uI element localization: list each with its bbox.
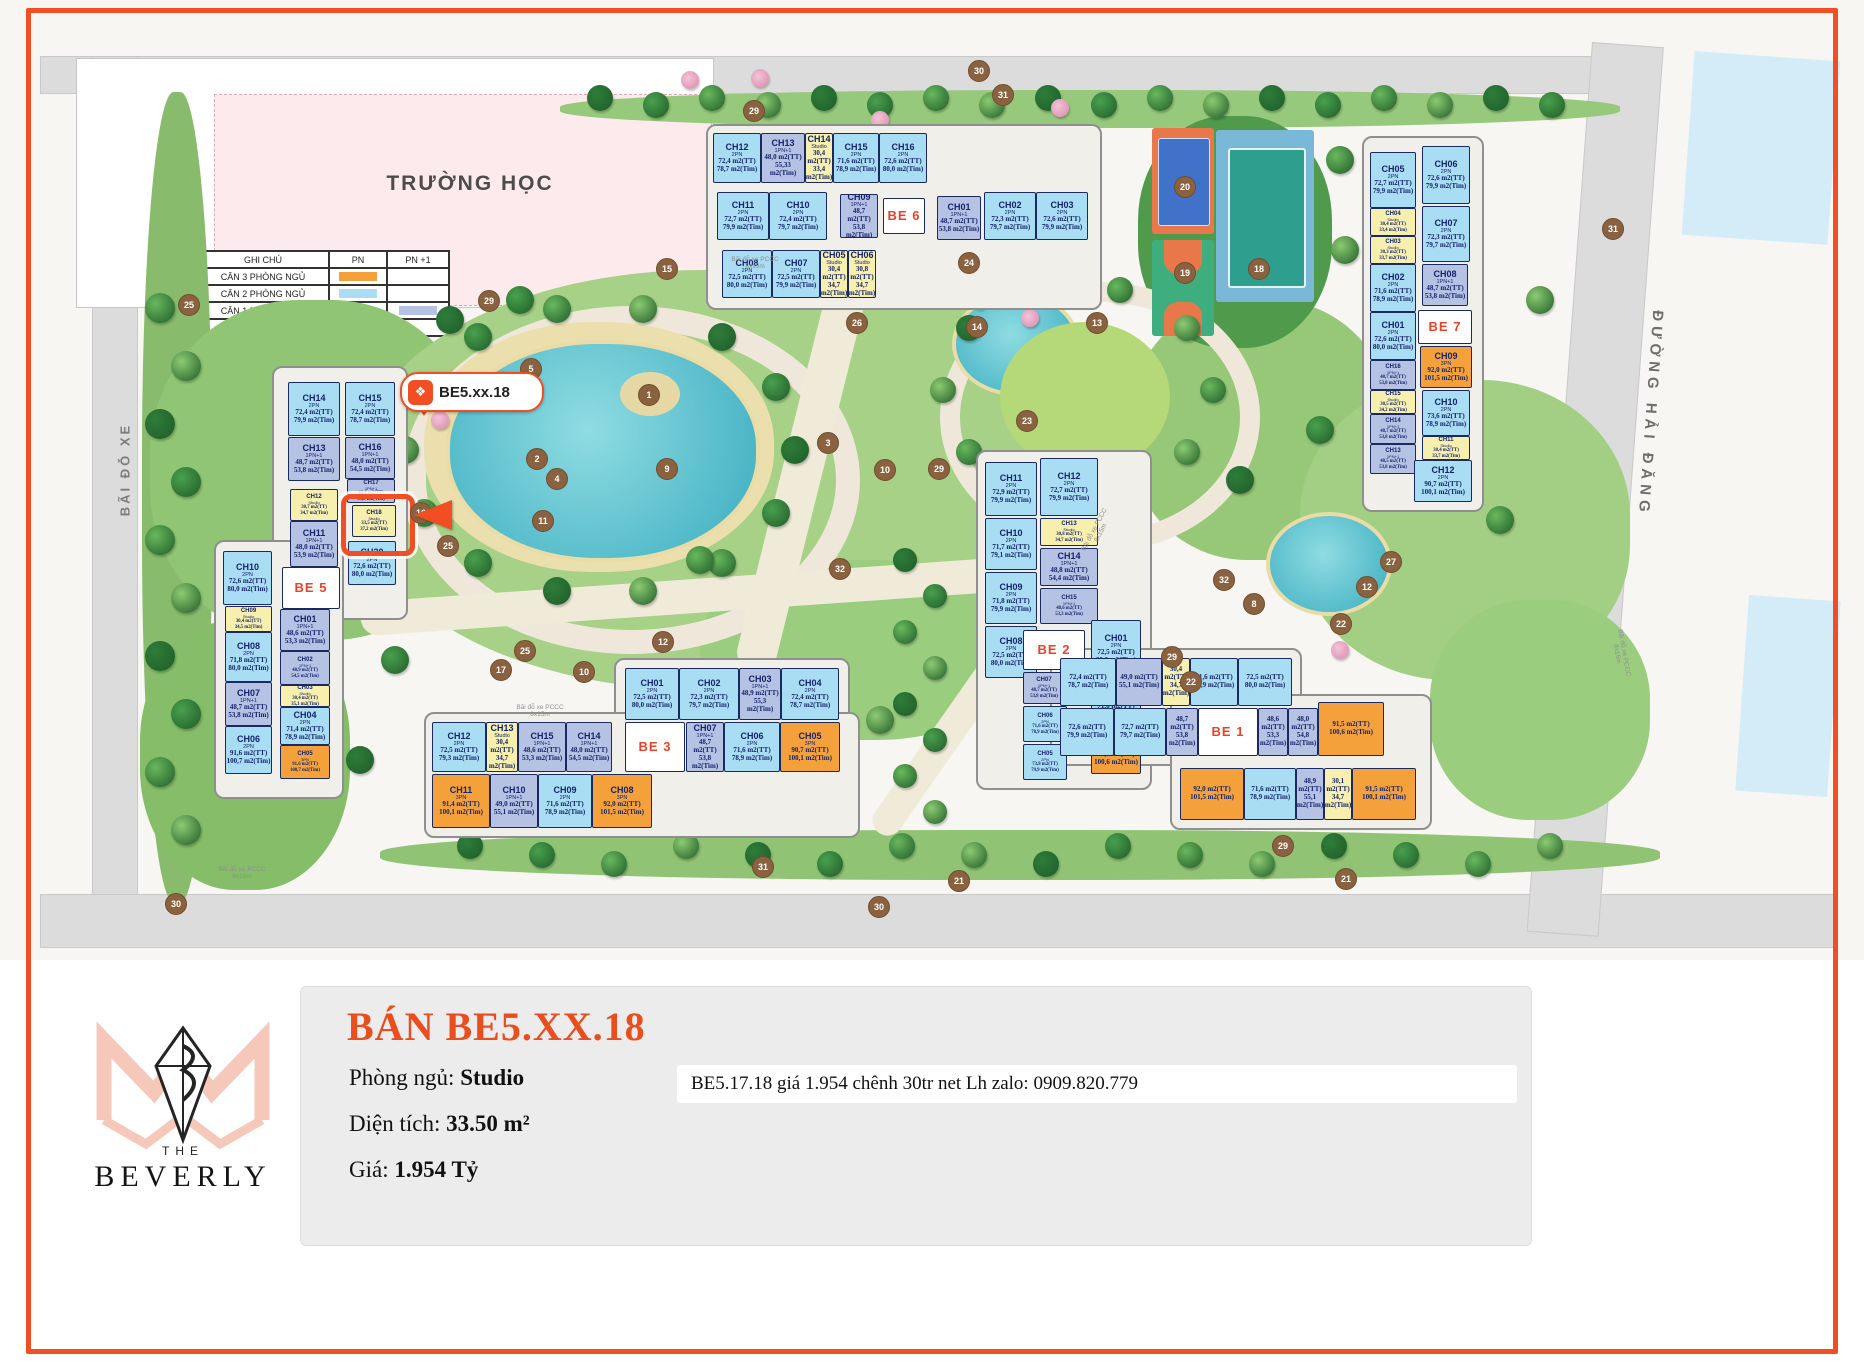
area-field: Diện tích: 33.50 m² [349, 1111, 530, 1137]
tree [1427, 92, 1453, 118]
building-name: BE 6 [888, 209, 921, 224]
tree [171, 583, 201, 613]
unit-area-tim: 80,0 m2(Tim) [883, 166, 923, 174]
poi-marker: 25 [178, 294, 200, 316]
unit-cell[interactable]: 72,6 m2(TT)79,9 m2(Tim) [1060, 708, 1114, 756]
unit-area-tim: 78,9 m2(Tim) [1373, 296, 1413, 304]
unit-code: CH04 [798, 678, 821, 688]
unit-cell[interactable]: CH06Studio30,8 m2(TT)34,7 m2(Tim) [848, 250, 876, 298]
poi-marker: 8 [1243, 593, 1265, 615]
unit-code: CH10 [786, 200, 809, 210]
poi-marker: 25 [514, 640, 536, 662]
tree [436, 306, 464, 334]
tree [893, 548, 917, 572]
unit-cell[interactable]: 71,6 m2(TT)78,9 m2(Tim) [1244, 768, 1296, 820]
unit-area-tim: 53,8 m2(Tim) [1425, 293, 1465, 301]
unit-cell[interactable]: 48,7 m2(TT)53,8 m2(Tim) [1166, 708, 1198, 756]
unit-code: CH13 [771, 138, 794, 148]
tree [781, 436, 809, 464]
unit-cell[interactable]: CH062PN72,6 m2(TT)79,9 m2(Tim) [1422, 146, 1470, 204]
price-label: Giá: [349, 1157, 389, 1182]
unit-cell[interactable]: CH15Studio30,5 m2(TT)34,2 m2(Tim) [1370, 390, 1416, 414]
poi-marker: 30 [868, 896, 890, 918]
unit-area-tim: 78,9 m2(Tim) [545, 809, 585, 817]
unit-cell[interactable]: CH112PN72,7 m2(TT)79,9 m2(Tim) [717, 192, 769, 240]
unit-cell[interactable]: CH12Studio30,7 m2(TT)34,7 m2(Tim) [290, 489, 338, 521]
unit-cell[interactable]: 92,0 m2(TT)101,5 m2(Tim) [1180, 768, 1244, 820]
unit-area-tim: 100,6 m2(Tim) [1329, 729, 1373, 737]
unit-cell[interactable]: CH022PN72,3 m2(TT)79,7 m2(Tim) [984, 192, 1036, 240]
unit-cell[interactable]: 72,4 m2(TT)78,7 m2(Tim) [1060, 658, 1116, 706]
unit-code: CH05 [798, 731, 821, 741]
unit-area-tim: 33,4 m2(Tim) [806, 166, 832, 182]
unit-callout-label: BE5.xx.18 [439, 384, 510, 401]
unit-code: CH12 [1431, 465, 1454, 475]
unit-cell[interactable]: CH03Studio30,3 m2(TT)33,7 m2(Tim) [1370, 236, 1416, 264]
tree [686, 546, 714, 574]
unit-area-tim: 33,4 m2(Tim) [1379, 228, 1407, 233]
unit-code: CH16 [891, 142, 914, 152]
unit-cell[interactable]: CH152PN71,6 m2(TT)78,9 m2(Tim) [833, 133, 879, 183]
unit-area-tim: 101,5 m2(Tim) [1190, 794, 1234, 802]
unit-cell[interactable]: CH052PN72,7 m2(TT)79,9 m2(Tim) [1370, 152, 1416, 208]
unit-area-tim: 53,8 m2(Tim) [1030, 694, 1058, 699]
unit-cell[interactable]: CH071PN+148,7 m2(TT)53,8 m2(Tim) [225, 682, 272, 726]
unit-code: CH07 [237, 688, 260, 698]
unit-cell[interactable]: CH022PN72,3 m2(TT)79,7 m2(Tim) [679, 668, 739, 720]
unit-cell[interactable]: CH101PN+149,0 m2(TT)55,1 m2(Tim) [490, 774, 538, 828]
legend-row-label: CĂN 3 PHÒNG NGỦ [197, 268, 329, 285]
unit-cell[interactable]: CH091PN+148,7 m2(TT)53,8 m2(Tim) [840, 194, 878, 238]
unit-cell[interactable]: CH122PN90,7 m2(TT)100,1 m2(Tim) [1414, 460, 1472, 502]
unit-area-tim: 79,9 m2(Tim) [723, 224, 763, 232]
tree [961, 842, 987, 868]
tree [1393, 842, 1419, 868]
unit-code: CH01 [947, 202, 970, 212]
unit-area-tim: 34,7 m2(Tim) [487, 755, 517, 771]
unit-area-tt: 30,4 m2(TT) [806, 150, 832, 166]
unit-cell[interactable]: CH011PN+148,6 m2(TT)53,3 m2(Tim) [280, 609, 330, 651]
unit-cell[interactable]: CH113PN91,4 m2(TT)100,1 m2(Tim) [432, 774, 490, 828]
unit-cell[interactable]: CH14Studio30,4 m2(TT)33,4 m2(Tim) [805, 133, 833, 183]
unit-code: CH15 [530, 731, 553, 741]
tree [1203, 92, 1229, 118]
brand-name-label: BEVERLY [58, 1160, 308, 1194]
unit-area-tim: 80,0 m2(Tim) [727, 282, 767, 290]
poi-marker: 29 [743, 100, 765, 122]
unit-area-tim: 34,2 m2(Tim) [1379, 408, 1407, 413]
unit-cell[interactable]: CH072PN72,3 m2(TT)79,7 m2(Tim) [1422, 206, 1470, 262]
unit-cell[interactable]: CH141PN+148,7 m2(TT)53,8 m2(Tim) [1370, 414, 1416, 444]
unit-cell[interactable]: CH083PN92,0 m2(TT)101,5 m2(Tim) [592, 774, 652, 828]
poi-marker: 1 [638, 384, 660, 406]
unit-code: CH15 [358, 393, 381, 403]
unit-cell[interactable]: CH03Studio30,4 m2(TT)35,1 m2(Tim) [280, 685, 330, 707]
unit-cell[interactable]: 91,5 m2(TT)100,6 m2(Tim) [1318, 702, 1384, 756]
unit-code: CH14 [807, 134, 830, 144]
tree [1306, 416, 1334, 444]
legend-swatch-pn1 [387, 268, 449, 285]
unit-cell[interactable]: CH162PN72,6 m2(TT)80,0 m2(Tim) [879, 133, 927, 183]
unit-cell[interactable]: 48,6 m2(TT)53,3 m2(Tim) [1258, 708, 1288, 756]
unit-area-tim: 100,6 m2(Tim) [1094, 759, 1138, 767]
unit-cell[interactable]: CH012PN72,5 m2(TT)80,0 m2(Tim) [625, 668, 679, 720]
unit-area-tim: 55,1 m2(Tim) [1119, 682, 1159, 690]
unit-area-tim: 33,7 m2(Tim) [1432, 454, 1460, 459]
unit-area-tim: 53,8 m2(Tim) [294, 467, 334, 475]
page: { "page":{"frame_color":"#f14e23"}, "map… [0, 0, 1864, 1366]
poi-marker: 31 [1602, 218, 1624, 240]
unit-area-tim: 78,7 m2(Tim) [790, 702, 830, 710]
school-label: TRƯỜNG HỌC [330, 172, 610, 196]
unit-cell[interactable]: CH122PN72,5 m2(TT)79,3 m2(Tim) [432, 722, 486, 772]
unit-area-tt: 48,7 m2(TT) [841, 208, 877, 224]
unit-code: CH01 [1104, 633, 1127, 643]
tree [817, 851, 843, 877]
poi-marker: 30 [968, 60, 990, 82]
highlight-ring [341, 494, 415, 556]
poi-marker: 13 [1086, 312, 1108, 334]
unit-code: CH06 [850, 250, 873, 260]
unit-code: CH06 [740, 731, 763, 741]
parking-label: Bãi đỗ xe PCCC 8x15m [212, 866, 272, 881]
tree [145, 293, 175, 323]
tree [171, 699, 201, 729]
unit-area-tim: 100,1 m2(Tim) [439, 809, 483, 817]
building-name: BE 3 [639, 740, 672, 755]
building-label[interactable]: BE 1 [1198, 708, 1258, 756]
unit-code: CH10 [1434, 397, 1457, 407]
tree [1259, 85, 1285, 111]
unit-area-tim: 53,8 m2(Tim) [841, 224, 877, 238]
unit-area-tim: 33,7 m2(Tim) [1379, 256, 1407, 261]
unit-area-tim: 101,5 m2(Tim) [1424, 375, 1468, 383]
unit-cell[interactable]: CH161PN+148,7 m2(TT)53,8 m2(Tim) [1370, 360, 1416, 390]
unit-area-tim: 34,7 m2(Tim) [1055, 538, 1083, 543]
unit-code: CH14 [302, 393, 325, 403]
unit-area-tim: 79,9 m2(Tim) [991, 606, 1031, 614]
unit-cell[interactable]: CH142PN72,4 m2(TT)79,9 m2(Tim) [288, 382, 340, 436]
poi-marker: 14 [966, 316, 988, 338]
legend-header: PN +1 [387, 251, 449, 268]
unit-area-tim: 55,33 m2(Tim) [762, 162, 804, 178]
unit-code: CH09 [847, 194, 870, 202]
unit-code: CH01 [640, 678, 663, 688]
unit-cell[interactable]: CH082PN71,8 m2(TT)80,0 m2(Tim) [225, 632, 272, 682]
unit-code: CH01 [1381, 320, 1404, 330]
unit-area-tim: 54,5 m2(Tim) [291, 674, 319, 679]
unit-cell[interactable]: CH111PN+148,0 m2(TT)53,9 m2(Tim) [290, 521, 338, 567]
unit-code: CH09 [553, 785, 576, 795]
unit-area-tt: 48,6 m2(TT) [1259, 716, 1287, 732]
unit-area-tim: 34,7 m2(Tim) [300, 511, 328, 516]
unit-area-tim: 78,7 m2(Tim) [350, 417, 390, 425]
unit-cell[interactable]: CH152PN72,4 m2(TT)78,7 m2(Tim) [345, 382, 395, 436]
area-value: 33.50 m² [446, 1111, 530, 1136]
unit-cell[interactable]: CH042PN72,4 m2(TT)78,7 m2(Tim) [781, 668, 839, 720]
unit-cell[interactable]: CH012PN72,6 m2(TT)80,0 m2(Tim) [1370, 312, 1416, 360]
poi-marker: 20 [1174, 176, 1196, 198]
parking-road-label: BÃI ĐỖ XE [118, 415, 133, 525]
unit-area-tim: 78,9 m2(Tim) [732, 755, 772, 763]
unit-area-tim: 79,9 m2(Tim) [776, 282, 816, 290]
poi-marker: 29 [1161, 646, 1183, 668]
unit-area-tim: 80,0 m2(Tim) [352, 571, 392, 579]
unit-cell[interactable]: CH151PN+148,6 m2(TT)53,3 m2(Tim) [1040, 588, 1098, 624]
unit-cell[interactable]: CH093PN92,0 m2(TT)101,5 m2(Tim) [1420, 346, 1472, 388]
tree [529, 842, 555, 868]
tree [923, 85, 949, 111]
unit-cell[interactable]: 49,0 m2(TT)55,1 m2(Tim) [1116, 658, 1162, 706]
tree [1315, 92, 1341, 118]
unit-code: CH16 [358, 442, 381, 452]
poi-marker: 27 [1380, 551, 1402, 573]
poi-marker: 12 [1356, 576, 1378, 598]
unit-area-tim: 54,5 m2(Tim) [350, 466, 390, 474]
unit-area-tim: 79,9 m2(Tim) [1042, 224, 1082, 232]
tree [923, 800, 947, 824]
unit-cell[interactable]: 30,1 m2(TT)34,7 m2(Tim) [1324, 768, 1352, 820]
unit-cell[interactable]: CH092PN71,6 m2(TT)78,9 m2(Tim) [538, 774, 592, 828]
tree [1249, 851, 1275, 877]
tree [145, 409, 175, 439]
unit-cell[interactable]: CH062PN91,6 m2(TT)100,7 m2(Tim) [225, 726, 272, 774]
tree [1371, 85, 1397, 111]
unit-code: CH08 [1433, 269, 1456, 279]
unit-callout[interactable]: ❖ BE5.xx.18 [400, 372, 544, 412]
tree [866, 706, 894, 734]
unit-area-tim: 53,8 m2(Tim) [687, 755, 723, 771]
poi-marker: 3 [817, 432, 839, 454]
unit-cell[interactable]: CH122PN72,4 m2(TT)78,7 m2(Tim) [713, 133, 761, 183]
unit-cell[interactable]: 48,0 m2(TT)54,8 m2(Tim) [1288, 708, 1318, 756]
price-value: 1.954 Tỷ [394, 1157, 478, 1182]
unit-cell[interactable]: CH131PN+148,5 m2(TT)53,8 m2(Tim) [1370, 444, 1416, 474]
unit-code: CH13 [490, 723, 513, 733]
poi-marker: 12 [652, 631, 674, 653]
poi-marker: 10 [874, 459, 896, 481]
unit-code: CH03 [1050, 200, 1073, 210]
unit-cell[interactable]: CH071PN+148,7 m2(TT)53,8 m2(Tim) [1023, 672, 1065, 704]
unit-code: CH07 [1434, 218, 1457, 228]
unit-cell[interactable]: CH151PN+148,6 m2(TT)53,3 m2(Tim) [518, 722, 566, 772]
unit-cell[interactable]: CH04Studio30,4 m2(TT)33,4 m2(Tim) [1370, 208, 1416, 236]
unit-code: CH04 [293, 710, 316, 720]
unit-area-tim: 54,8 m2(Tim) [1289, 732, 1317, 748]
unit-cell[interactable]: CH11Studio30,4 m2(TT)33,7 m2(Tim) [1422, 436, 1470, 460]
tree [171, 467, 201, 497]
poi-marker: 23 [1016, 410, 1038, 432]
unit-cell[interactable]: CH053PN90,7 m2(TT)100,1 m2(Tim) [780, 722, 840, 772]
poi-marker: 29 [928, 458, 950, 480]
unit-cell[interactable]: CH092PN71,8 m2(TT)79,9 m2(Tim) [985, 572, 1037, 624]
tree [708, 323, 736, 351]
unit-cell[interactable]: CH032PN72,6 m2(TT)79,9 m2(Tim) [1036, 192, 1088, 240]
unit-code: CH08 [610, 785, 633, 795]
poi-marker: 29 [1272, 835, 1294, 857]
tree [381, 646, 409, 674]
listing-panel: BÁN BE5.XX.18 Phòng ngủ: Studio Diện tíc… [300, 986, 1532, 1246]
poi-marker: 19 [1174, 262, 1196, 284]
unit-area-tim: 78,7 m2(Tim) [717, 166, 757, 174]
bedrooms-label: Phòng ngủ: [349, 1065, 454, 1090]
unit-code: CH10 [236, 562, 259, 572]
unit-area-tim: 100,7 m2(Tim) [227, 758, 271, 766]
tree [1321, 833, 1347, 859]
unit-cell[interactable]: CH081PN+148,7 m2(TT)53,8 m2(Tim) [1422, 264, 1468, 306]
listing-note-input[interactable]: BE5.17.18 giá 1.954 chênh 30tr net Lh za… [677, 1065, 1517, 1103]
tree [889, 833, 915, 859]
listing-title: BÁN BE5.XX.18 [347, 1003, 646, 1050]
unit-code: CH11 [1000, 473, 1023, 483]
blossom-tree [1331, 641, 1349, 659]
poi-marker: 30 [165, 893, 187, 915]
water-top-right [1682, 51, 1840, 245]
poi-marker: 26 [846, 312, 868, 334]
legend-swatch-pn1 [387, 285, 449, 302]
unit-area-tim: 53,3 m2(Tim) [1055, 612, 1083, 617]
unit-area-tim: 78,9 m2(Tim) [1250, 794, 1290, 802]
unit-code: CH11 [732, 200, 755, 210]
poi-marker: 4 [546, 468, 568, 490]
unit-code: CH07 [784, 258, 807, 268]
unit-code: CH11 [450, 785, 473, 795]
tree [587, 85, 613, 111]
unit-code: CH06 [1434, 159, 1457, 169]
legend-header: GHI CHÚ [197, 251, 329, 268]
unit-cell[interactable]: CH021PN+148,9 m2(TT)54,5 m2(Tim) [280, 651, 330, 685]
price-field: Giá: 1.954 Tỷ [349, 1157, 478, 1183]
blossom-tree [1051, 99, 1069, 117]
unit-cell[interactable]: CH031PN+148,9 m2(TT)55,3 m2(Tim) [739, 668, 781, 720]
unit-cell[interactable]: CH05Studio30,4 m2(TT)34,7 m2(Tim) [820, 250, 848, 298]
unit-cell[interactable]: CH161PN+148,0 m2(TT)54,5 m2(Tim) [345, 437, 395, 479]
tree [543, 295, 571, 323]
unit-code: CH05 [1381, 164, 1404, 174]
unit-cell[interactable]: 91,5 m2(TT)100,1 m2(Tim) [1352, 768, 1416, 820]
tree [1526, 286, 1554, 314]
poi-marker: 32 [829, 558, 851, 580]
poi-marker: 22 [1180, 671, 1202, 693]
unit-area-tt: 48,9 m2(TT) [1297, 778, 1323, 794]
tree [1200, 377, 1226, 403]
unit-code: CH15 [844, 142, 867, 152]
unit-cell[interactable]: CH141PN+148,0 m2(TT)54,5 m2(Tim) [566, 722, 612, 772]
unit-cell[interactable]: CH112PN72,9 m2(TT)79,9 m2(Tim) [985, 462, 1037, 516]
unit-cell[interactable]: CH09Studio30,4 m2(TT)34,5 m2(Tim) [225, 606, 272, 632]
unit-area-tim: 80,0 m2(Tim) [632, 702, 672, 710]
tree [171, 351, 201, 381]
building-label[interactable]: BE 6 [883, 198, 925, 234]
unit-area-tim: 53,8 m2(Tim) [1379, 465, 1407, 470]
tree [1537, 833, 1563, 859]
unit-area-tim: 79,9 m2(Tim) [1031, 768, 1059, 773]
poi-marker: 2 [526, 448, 548, 470]
unit-area-tim: 78,9 m2(Tim) [1426, 421, 1466, 429]
unit-cell[interactable]: CH102PN73,6 m2(TT)78,9 m2(Tim) [1422, 390, 1470, 436]
unit-area-tim: 79,9 m2(Tim) [1049, 495, 1089, 503]
unit-cell[interactable]: CH042PN71,4 m2(TT)78,9 m2(Tim) [280, 707, 330, 745]
unit-code: CH01 [293, 614, 316, 624]
unit-area-tim: 53,8 m2(Tim) [1379, 381, 1407, 386]
tree [923, 656, 947, 680]
unit-code: CH02 [998, 200, 1021, 210]
unit-cell[interactable]: CH011PN+148,7 m2(TT)53,8 m2(Tim) [937, 196, 981, 240]
unit-cell[interactable]: CH131PN+148,7 m2(TT)53,8 m2(Tim) [288, 437, 340, 481]
unit-code: CH09 [1434, 351, 1457, 361]
unit-code: CH07 [693, 723, 716, 733]
building-label[interactable]: BE 3 [625, 722, 685, 772]
tree [1483, 85, 1509, 111]
unit-area-tim: 55,1 m2(Tim) [1297, 794, 1323, 810]
tree [893, 620, 917, 644]
tree [1033, 851, 1059, 877]
legend-header: PN [329, 251, 387, 268]
poi-marker: 29 [478, 290, 500, 312]
blossom-tree [751, 69, 769, 87]
building-label[interactable]: BE 7 [1418, 310, 1472, 344]
unit-cell[interactable]: CH062PN71,6 m2(TT)78,9 m2(Tim) [724, 722, 780, 772]
building-label[interactable]: BE 5 [282, 567, 340, 609]
tree [930, 377, 956, 403]
unit-area-tim: 100,1 m2(Tim) [1421, 489, 1465, 497]
unit-cell[interactable]: CH102PN71,7 m2(TT)79,1 m2(Tim) [985, 518, 1037, 570]
unit-cell[interactable]: 72,5 m2(TT)80,0 m2(Tim) [1238, 658, 1292, 706]
poi-marker: 24 [958, 252, 980, 274]
unit-area-tim: 34,5 m2(Tim) [235, 625, 263, 630]
unit-cell[interactable]: 72,7 m2(TT)79,7 m2(Tim) [1114, 708, 1166, 756]
unit-cell[interactable]: CH102PN72,6 m2(TT)80,0 m2(Tim) [223, 551, 272, 605]
unit-area-tim: 53,8 m2(Tim) [1379, 435, 1407, 440]
unit-area-tim: 55,3 m2(Tim) [740, 698, 780, 714]
unit-area-tt: 30,1 m2(TT) [1325, 778, 1351, 794]
unit-area-tim: 53,8 m2(Tim) [939, 226, 979, 234]
unit-cell[interactable]: CH122PN72,7 m2(TT)79,9 m2(Tim) [1040, 458, 1098, 516]
unit-code: CH10 [502, 785, 525, 795]
site-plan-map[interactable]: BÃI ĐỖ XE ĐƯỜNG HẢI ĐĂNG TRƯỜNG HỌC GHI … [0, 0, 1864, 960]
tree [893, 692, 917, 716]
unit-area-tim: 80,0 m2(Tim) [1245, 682, 1285, 690]
unit-cell[interactable]: CH102PN72,4 m2(TT)79,7 m2(Tim) [769, 192, 827, 240]
unit-cell[interactable]: CH13Studio30,4 m2(TT)34,7 m2(Tim) [486, 722, 518, 772]
unit-code: CH12 [447, 731, 470, 741]
unit-cell[interactable]: CH053PN91,6 m2(TT)100,7 m2(Tim) [280, 745, 330, 779]
unit-area-tim: 34,7 m2(Tim) [849, 282, 875, 298]
tree [1177, 842, 1203, 868]
poi-marker: 15 [656, 258, 678, 280]
unit-area-tim: 100,1 m2(Tim) [788, 755, 832, 763]
legend-swatch-pn [329, 268, 387, 285]
tree [1465, 851, 1491, 877]
unit-area-tim: 53,9 m2(Tim) [294, 552, 334, 560]
unit-area-tim: 79,3 m2(Tim) [439, 755, 479, 763]
unit-area-tim: 53,3 m2(Tim) [522, 755, 562, 763]
tree [506, 286, 534, 314]
unit-cell[interactable]: CH071PN+148,7 m2(TT)53,8 m2(Tim) [686, 722, 724, 772]
brand-logo: THE BEVERLY [58, 988, 308, 1244]
unit-code: CH03 [748, 674, 771, 684]
unit-area-tim: 101,5 m2(Tim) [600, 809, 644, 817]
unit-area-tt: 30,8 m2(TT) [849, 266, 875, 282]
unit-area-tim: 80,0 m2(Tim) [227, 586, 267, 594]
pond [1266, 512, 1392, 616]
unit-cell[interactable]: CH022PN71,6 m2(TT)78,9 m2(Tim) [1370, 264, 1416, 312]
unit-area-tim: 79,1 m2(Tim) [991, 552, 1031, 560]
tree [1147, 85, 1173, 111]
unit-cell[interactable]: CH131PN+148,0 m2(TT)55,33 m2(Tim) [761, 133, 805, 183]
unit-area-tim: 34,7 m2(Tim) [821, 282, 847, 298]
unit-cell[interactable]: 48,9 m2(TT)55,1 m2(Tim) [1296, 768, 1324, 820]
